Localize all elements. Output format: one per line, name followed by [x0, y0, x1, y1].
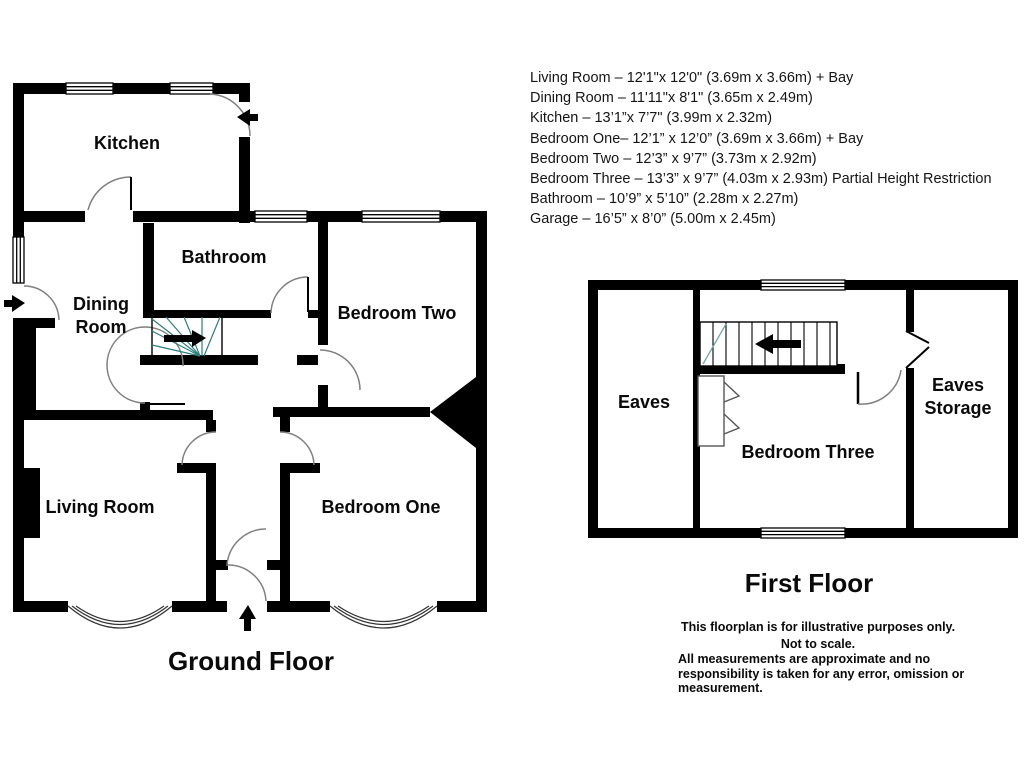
- eaves-label: Eaves: [618, 391, 670, 413]
- first-floor-bottom-window: [761, 528, 845, 538]
- bedroom-two-label: Bedroom Two: [338, 302, 457, 324]
- ground-floor-stairs: [152, 317, 222, 356]
- first-floor-top-window: [761, 280, 845, 290]
- chimney-breast: [430, 377, 476, 448]
- under-stairs-cupboard: [698, 376, 739, 446]
- disclaimer-line: All measurements are approximate and no: [678, 652, 964, 667]
- living-room-label: Living Room: [46, 496, 155, 518]
- bedroom-three-door: [858, 370, 901, 404]
- disclaimer-line: This floorplan is for illustrative purpo…: [681, 619, 955, 636]
- dimension-line: Bedroom Two – 12’3” x 9’7” (3.73m x 2.92…: [530, 149, 992, 169]
- disclaimer-line: responsibility is taken for any error, o…: [678, 667, 964, 682]
- first-floor-title: First Floor: [745, 568, 874, 599]
- floorplan-page: Kitchen Bathroom Bedroom Two Dining Room…: [0, 0, 1024, 768]
- eaves-storage-opening: [906, 331, 929, 368]
- side-entrance-arrow: [4, 295, 25, 312]
- kitchen-window-1: [66, 83, 113, 94]
- dimension-line: Bedroom One– 12’1” x 12’0” (3.69m x 3.66…: [530, 129, 992, 149]
- disclaimer-line: measurement.: [678, 681, 964, 696]
- bedroom-one-label: Bedroom One: [321, 496, 440, 518]
- disclaimer-line: Not to scale.: [681, 636, 955, 653]
- ground-floor-title: Ground Floor: [168, 646, 334, 677]
- kitchen-dining-door-arc: [88, 177, 131, 210]
- dimension-line: Dining Room – 11'11"x 8'1" (3.65m x 2.49…: [530, 88, 992, 108]
- bedroom-one-door-arc: [280, 432, 314, 465]
- bedroom-three-label: Bedroom Three: [741, 441, 874, 463]
- ground-floor-plan: [4, 83, 487, 631]
- front-entrance-arrow: [239, 605, 256, 631]
- bathroom-window: [255, 211, 307, 222]
- first-floor-stairs: [700, 322, 837, 366]
- dimension-line: Bathroom – 10’9” x 5’10” (2.28m x 2.27m): [530, 189, 992, 209]
- living-room-bay-window: [68, 606, 172, 628]
- dimension-line: Garage – 16’5” x 8’0” (5.00m x 2.45m): [530, 209, 992, 229]
- bedroom-two-window: [362, 211, 440, 222]
- dimension-line: Bedroom Three – 13’3” x 9’7” (4.03m x 2.…: [530, 169, 992, 189]
- bedroom-two-door-arc: [320, 350, 360, 390]
- kitchen-entrance-arrow: [237, 109, 258, 126]
- living-room-chimney: [24, 468, 40, 538]
- disclaimer-centered: This floorplan is for illustrative purpo…: [681, 619, 955, 653]
- bathroom-door-arc: [271, 277, 308, 313]
- bathroom-label: Bathroom: [182, 246, 267, 268]
- kitchen-label: Kitchen: [94, 132, 160, 154]
- bedroom-one-bay-window: [330, 606, 437, 628]
- front-door-arc: [228, 565, 266, 601]
- dining-room-window: [13, 237, 24, 283]
- disclaimer-left: All measurements are approximate and no …: [678, 652, 964, 696]
- dimension-line: Living Room – 12'1"x 12'0" (3.69m x 3.66…: [530, 68, 992, 88]
- porch-inner-door-arc: [227, 529, 266, 566]
- first-floor-windows: [761, 280, 845, 538]
- side-entrance-door-arc: [24, 286, 59, 320]
- living-room-door-arc: [182, 432, 216, 465]
- dimension-line: Kitchen – 13’1”x 7’7" (3.99m x 2.32m): [530, 108, 992, 128]
- dining-room-label: Dining Room: [73, 293, 129, 339]
- room-dimensions-list: Living Room – 12'1"x 12'0" (3.69m x 3.66…: [530, 68, 992, 230]
- eaves-storage-label: Eaves Storage: [924, 374, 991, 420]
- kitchen-window-2: [170, 83, 213, 94]
